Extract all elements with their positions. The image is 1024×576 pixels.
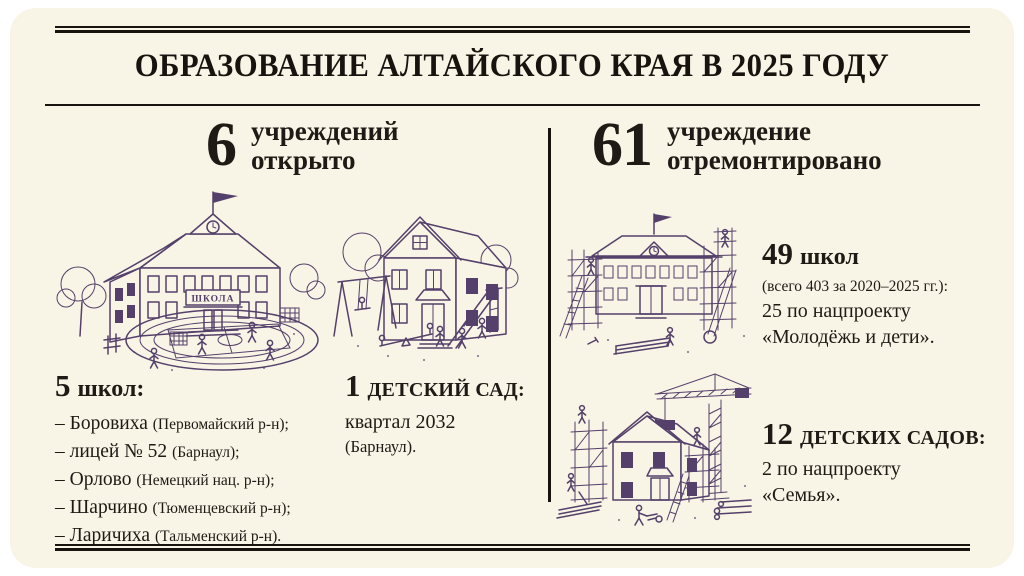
child-figure [198, 334, 206, 354]
stat-opened: 6 учреждений открыто [206, 114, 399, 176]
worker-figure [567, 474, 574, 491]
stat-renovated-label: учреждение отремонтировано [667, 115, 882, 175]
renovated-schools-project-line1: 25 по нацпроекту [762, 298, 1008, 324]
stat-opened-number: 6 [206, 114, 236, 176]
bottom-double-rule [55, 544, 970, 551]
opened-schools-list: – Боровиха (Первомайский р-н); – лицей №… [55, 410, 291, 550]
renovated-schools-block: 49школ (всего 403 за 2020–2025 гг.): 25 … [762, 236, 1008, 350]
page-title: ОБРАЗОВАНИЕ АЛТАЙСКОГО КРАЯ В 2025 ГОДУ [45, 48, 979, 85]
renovated-schools-heading: 49школ [762, 236, 1008, 272]
top-double-rule [55, 26, 970, 33]
school-sign-label: ШКОЛА [192, 295, 235, 305]
list-item: – Боровиха (Первомайский р-н); [55, 410, 291, 438]
renovated-school-illustration [558, 206, 752, 362]
renovated-kindergartens-heading: 12детских садов: [762, 416, 1008, 452]
construction-building [609, 412, 709, 500]
opened-schools-block: 5школ: – Боровиха (Первомайский р-н); – … [55, 368, 291, 550]
planks [614, 338, 670, 354]
scaffolding [571, 420, 607, 502]
kindergarten-location: квартал 2032 [345, 409, 525, 435]
child-figure [266, 340, 274, 360]
title-underline-rule [45, 104, 980, 106]
renovated-schools-note: (всего 403 за 2020–2025 гг.): [762, 275, 1008, 298]
list-item: – лицей № 52 (Барнаул); [55, 438, 291, 466]
hammer-icon [588, 338, 598, 345]
renovated-schools-project-line2: «Молодёжь и дети». [762, 324, 1008, 350]
goal-icon [280, 308, 299, 322]
stat-renovated-number: 61 [592, 114, 652, 176]
renovated-kindergartens-block: 12детских садов: 2 по нацпроекту «Семья»… [762, 416, 1008, 508]
opened-kindergarten-heading: 1детский сад: [345, 368, 525, 404]
renovated-kindergarten-illustration [555, 368, 759, 532]
infographic-card: ОБРАЗОВАНИЕ АЛТАЙСКОГО КРАЯ В 2025 ГОДУ … [10, 8, 1014, 568]
sack-icon [704, 331, 716, 343]
kindergarten-city: (Барнаул). [345, 435, 525, 459]
renovated-kindergartens-line1: 2 по нацпроекту [762, 456, 1008, 482]
worker-figure [578, 406, 585, 423]
opened-kindergarten-block: 1детский сад: квартал 2032 (Барнаул). [345, 368, 525, 459]
worker-figure [587, 258, 594, 275]
list-item: – Шарчино (Тюменцевский р-н); [55, 494, 291, 522]
worker-figure [721, 230, 728, 247]
child-figure [150, 348, 158, 368]
opened-school-illustration: ШКОЛА [52, 184, 332, 378]
stat-renovated: 61 учреждение отремонтировано [592, 114, 882, 176]
column-divider [548, 128, 551, 502]
opened-schools-heading: 5школ: [55, 368, 291, 404]
wheelbarrow-worker [635, 505, 662, 525]
renovated-kindergartens-line2: «Семья». [762, 482, 1008, 508]
flag-icon [654, 214, 672, 223]
stat-opened-label: учреждений открыто [251, 115, 399, 175]
renovated-building [586, 214, 722, 318]
opened-kindergarten-illustration [328, 196, 530, 374]
list-item: – Орлово (Немецкий нац. р-н); [55, 466, 291, 494]
shovel-icon [579, 492, 587, 504]
planks [557, 502, 601, 518]
pipes [714, 500, 751, 519]
flag-icon [213, 192, 238, 203]
school-building: ШКОЛА [104, 192, 280, 342]
